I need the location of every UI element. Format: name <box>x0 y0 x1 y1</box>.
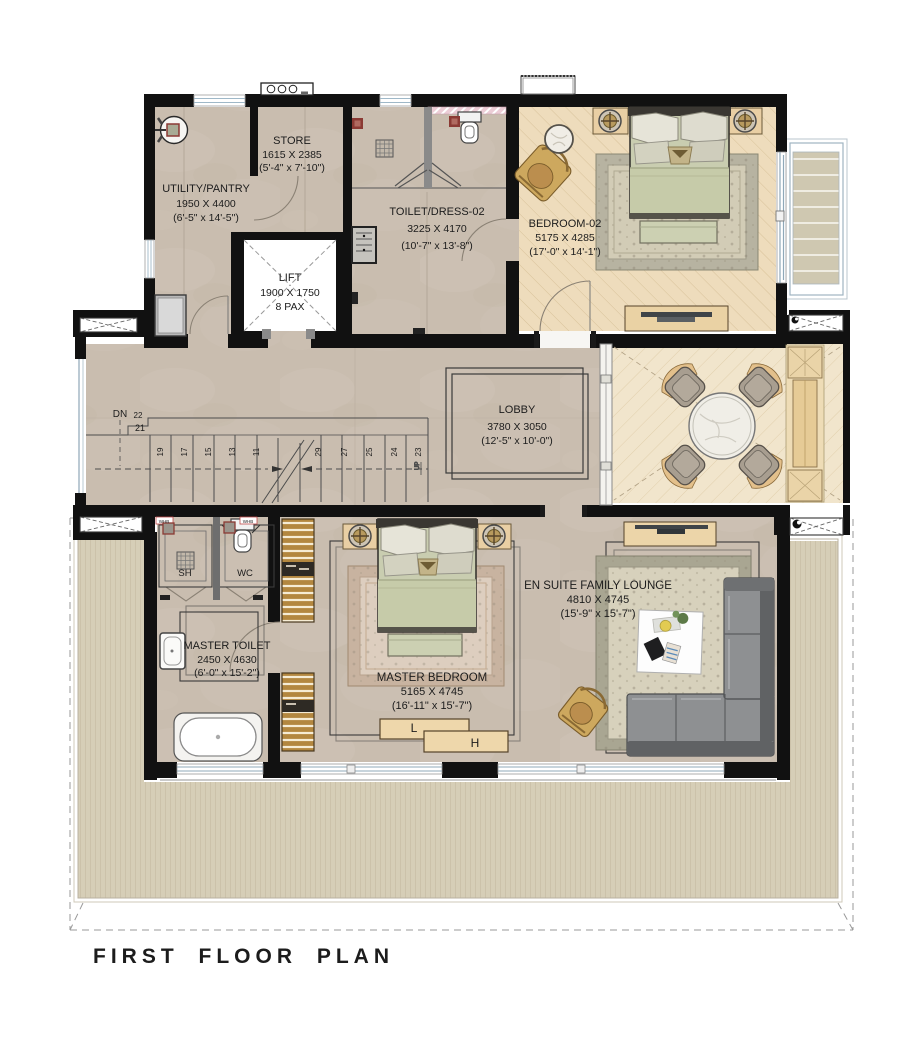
svg-text:1900 X 1750: 1900 X 1750 <box>260 287 320 299</box>
svg-text:15: 15 <box>204 447 213 456</box>
svg-text:BEDROOM-02: BEDROOM-02 <box>529 218 602 230</box>
svg-text:MASTER TOILET: MASTER TOILET <box>183 640 270 652</box>
svg-text:4810 X 4745: 4810 X 4745 <box>567 594 629 606</box>
svg-text:H: H <box>471 736 480 750</box>
svg-text:17: 17 <box>180 447 189 456</box>
svg-text:(12'-5" x 10'-0"): (12'-5" x 10'-0") <box>481 435 553 447</box>
svg-text:19: 19 <box>156 447 165 456</box>
svg-text:13: 13 <box>228 447 237 456</box>
svg-text:WC: WC <box>237 568 253 579</box>
svg-text:LOBBY: LOBBY <box>499 404 536 416</box>
svg-text:1950 X 4400: 1950 X 4400 <box>176 198 236 210</box>
svg-text:TOILET/DRESS-02: TOILET/DRESS-02 <box>389 206 484 218</box>
svg-text:(15'-9" x 15'-7"): (15'-9" x 15'-7") <box>561 608 636 620</box>
svg-text:24: 24 <box>390 447 399 456</box>
svg-text:EN SUITE FAMILY LOUNGE: EN SUITE FAMILY LOUNGE <box>524 580 672 592</box>
svg-text:SH: SH <box>178 568 191 579</box>
svg-text:(10'-7" x 13'-8"): (10'-7" x 13'-8") <box>401 240 473 252</box>
svg-text:29: 29 <box>314 447 323 456</box>
svg-text:2450 X 4630: 2450 X 4630 <box>197 654 257 666</box>
svg-text:DN: DN <box>113 409 127 420</box>
svg-text:3780 X 3050: 3780 X 3050 <box>487 421 547 433</box>
svg-text:21: 21 <box>135 423 145 433</box>
svg-text:L: L <box>411 721 418 735</box>
svg-text:(17'-0" x 14'-1"): (17'-0" x 14'-1") <box>529 246 601 258</box>
svg-text:MASTER BEDROOM: MASTER BEDROOM <box>377 672 488 684</box>
svg-text:WHB: WHB <box>243 519 254 524</box>
svg-text:8 PAX: 8 PAX <box>276 301 305 313</box>
svg-text:WHB: WHB <box>159 519 170 524</box>
svg-text:(5'-4" x 7'-10"): (5'-4" x 7'-10") <box>259 162 325 174</box>
svg-text:STORE: STORE <box>273 135 311 147</box>
svg-text:11: 11 <box>252 447 261 456</box>
svg-text:(16'-11" x 15'-7"): (16'-11" x 15'-7") <box>392 700 472 712</box>
svg-text:UP: UP <box>415 462 421 470</box>
svg-text:3225 X 4170: 3225 X 4170 <box>407 223 467 235</box>
svg-text:FIRST FLOOR PLAN: FIRST FLOOR PLAN <box>93 945 394 968</box>
svg-text:5175 X 4285: 5175 X 4285 <box>535 232 595 244</box>
svg-text:1615 X 2385: 1615 X 2385 <box>262 149 322 161</box>
svg-text:27: 27 <box>340 447 349 456</box>
svg-text:(6'-5" x 14'-5"): (6'-5" x 14'-5") <box>173 212 239 224</box>
svg-text:(6'-0" x 15'-2"): (6'-0" x 15'-2") <box>194 667 260 679</box>
svg-text:23: 23 <box>414 447 423 456</box>
svg-text:UTILITY/PANTRY: UTILITY/PANTRY <box>162 183 250 195</box>
svg-text:25: 25 <box>365 447 374 456</box>
svg-text:22: 22 <box>134 411 143 420</box>
svg-text:5165 X 4745: 5165 X 4745 <box>401 686 463 698</box>
svg-text:LIFT: LIFT <box>279 272 302 284</box>
